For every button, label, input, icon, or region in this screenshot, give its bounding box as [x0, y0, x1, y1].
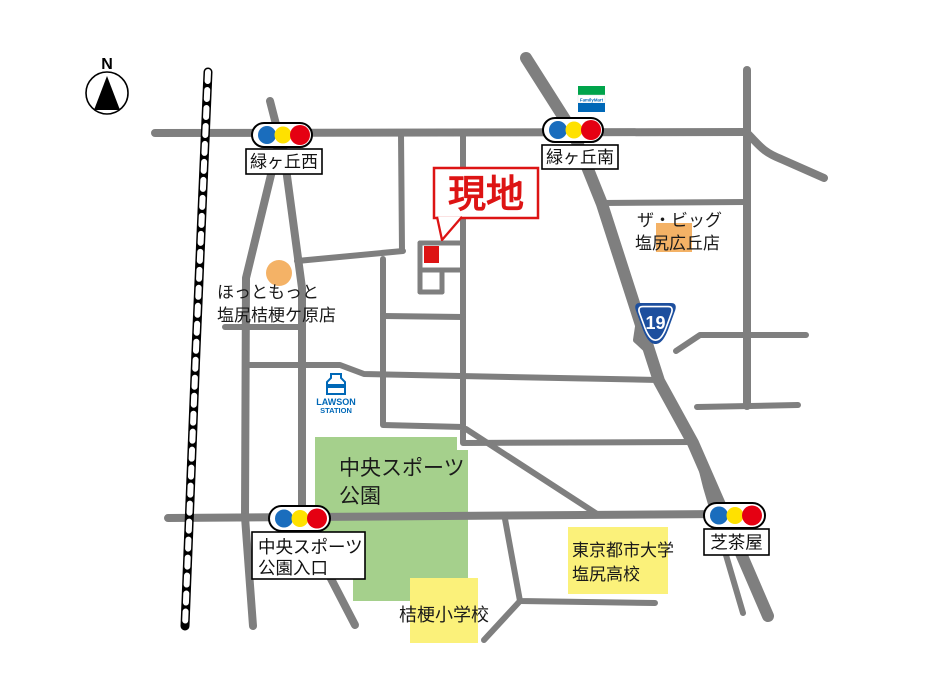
site-marker [424, 246, 439, 263]
signal-blue [549, 121, 567, 139]
compass-north-label: N [101, 56, 113, 73]
signal-red [307, 509, 327, 529]
familymart-logo-icon: FamilyMart [578, 86, 605, 112]
area-map-page: N FamilyMart LAWSON STATION 19 [0, 0, 947, 681]
the-big-label-line2: 塩尻広丘店 [635, 234, 720, 253]
label-midorigaoka-nishi: 緑ヶ丘西 [246, 149, 322, 174]
signal-yellow [292, 510, 309, 527]
intersection-name: 緑ヶ丘西 [250, 153, 318, 172]
signal-yellow [566, 122, 583, 139]
traffic-light-shibachaya [704, 503, 765, 528]
label-shibachaya: 芝茶屋 [704, 529, 769, 555]
signal-blue [710, 507, 728, 525]
intersection-name-line1: 中央スポーツ [258, 537, 363, 557]
signal-red [581, 120, 601, 140]
main-road-top [155, 132, 746, 133]
elementary-school-label: 桔梗小学校 [399, 605, 489, 625]
familymart-logo-text: FamilyMart [580, 97, 604, 102]
signal-blue [275, 510, 293, 528]
high-school-label-line1: 東京都市大学 [572, 541, 674, 560]
main-road-bottom [168, 514, 723, 518]
road [383, 316, 463, 317]
traffic-light-midorigaoka-minami [543, 118, 603, 142]
high-school-label-line2: 塩尻高校 [572, 565, 640, 584]
signal-red [290, 125, 310, 145]
intersection-name: 芝茶屋 [710, 533, 763, 553]
signal-blue [258, 126, 276, 144]
traffic-light-midorigaoka-nishi [252, 123, 312, 147]
label-midorigaoka-minami: 緑ヶ丘南 [542, 145, 618, 169]
signal-yellow [275, 127, 292, 144]
hotto-motto-label-line2: 塩尻桔梗ケ原店 [217, 306, 336, 325]
intersection-name-line2: 公園入口 [258, 558, 328, 578]
the-big-label-line1: ザ・ビッグ [637, 211, 722, 230]
label-sports-park-entrance: 中央スポーツ 公園入口 [252, 532, 365, 579]
site-label: 現地 [448, 174, 524, 216]
road [601, 202, 746, 203]
lawson-logo-line2: STATION [320, 406, 352, 415]
route-number: 19 [645, 313, 665, 333]
road [401, 134, 402, 251]
area-map: N FamilyMart LAWSON STATION 19 [0, 0, 947, 681]
sports-park-label-line2: 公園 [339, 485, 381, 508]
intersection-name: 緑ヶ丘南 [546, 148, 614, 167]
sports-park-label-line1: 中央スポーツ [339, 457, 465, 480]
signal-red [742, 506, 762, 526]
signal-yellow [727, 507, 744, 524]
traffic-light-sports-park-entrance [269, 506, 330, 531]
hotto-motto-label-line1: ほっともっと [217, 283, 319, 302]
